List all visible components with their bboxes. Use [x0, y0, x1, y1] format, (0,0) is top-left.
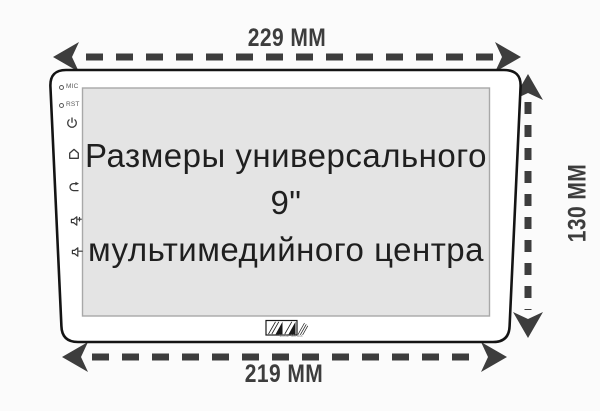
- screen-caption-line2: мультимедийного центра: [88, 226, 484, 273]
- arrow-right-icon: [495, 42, 521, 72]
- arrow-right-icon: [481, 342, 507, 372]
- dimension-label-top: 229 ММ: [248, 26, 326, 51]
- mic-port-label: MIC: [66, 84, 79, 91]
- screen-caption: Размеры универсального 9" мультимедийног…: [82, 88, 490, 316]
- arrow-left-icon: [62, 342, 88, 372]
- reset-hole-icon: [59, 103, 64, 108]
- logo-caption: Wide Media: [265, 335, 316, 339]
- dimension-label-bottom: 219 ММ: [245, 362, 323, 387]
- mic-hole-icon: [59, 85, 64, 90]
- screen-caption-line1: Размеры универсального 9": [82, 132, 490, 226]
- arrow-left-icon: [53, 42, 79, 72]
- mic-port: MIC: [59, 84, 79, 91]
- arrow-down-icon: [513, 312, 543, 338]
- reset-port: RST: [59, 102, 80, 109]
- diagram-stage: 229 ММ 219 ММ 130 ММ Размеры универсальн…: [0, 0, 600, 411]
- reset-port-label: RST: [66, 102, 80, 109]
- dimension-label-right: 130 ММ: [566, 164, 591, 242]
